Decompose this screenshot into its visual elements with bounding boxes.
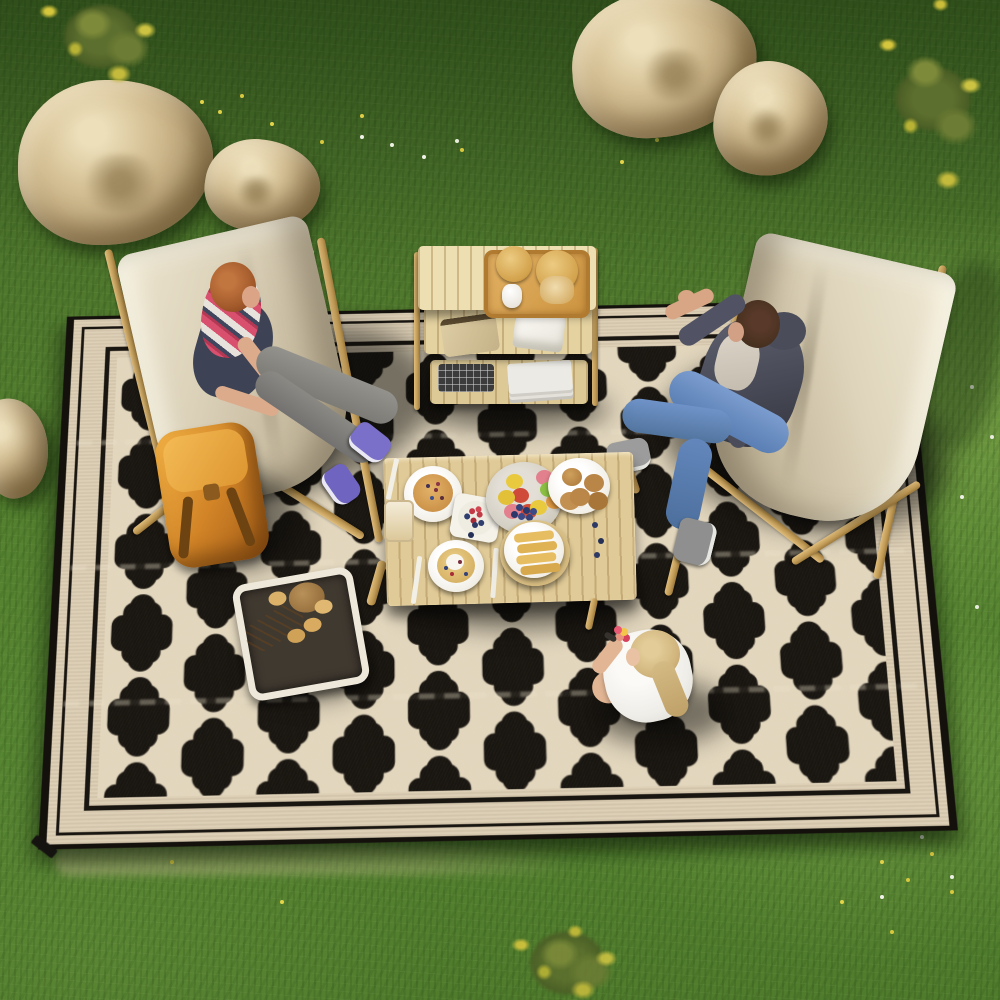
backpack-strap — [225, 486, 257, 547]
berries — [444, 566, 448, 570]
snack-bag — [440, 312, 501, 357]
shrub-bottom-center — [490, 918, 645, 1000]
child-snack — [614, 626, 622, 634]
yellow-flower-dots-bottom-right — [880, 860, 884, 864]
buns — [562, 468, 582, 486]
outdoor-picnic-scene — [0, 0, 1000, 1000]
cream-pancake-plate — [428, 540, 484, 592]
cream-dollop — [446, 554, 464, 570]
rock-mottling — [77, 154, 165, 212]
backpack-buckle — [202, 483, 220, 501]
snack-jar — [496, 246, 532, 282]
woman-face — [242, 286, 260, 308]
blueberry-cluster — [516, 504, 523, 511]
pancakes — [413, 474, 453, 512]
wire-basket — [438, 364, 494, 392]
dry-grass-patch — [55, 845, 575, 875]
child-face — [626, 648, 640, 666]
rock-mottling — [740, 105, 795, 154]
berries-on-pancake — [426, 484, 430, 488]
buns-plate — [548, 458, 610, 514]
mixed-fruit — [506, 474, 523, 489]
rock-mottling — [636, 47, 713, 103]
loose-blueberries — [472, 522, 478, 528]
bread-basket — [231, 565, 372, 702]
white-flower-dots — [360, 135, 364, 139]
toast-plate — [504, 522, 564, 578]
creamer-pitcher — [502, 284, 522, 308]
snack-jar-on-table — [384, 500, 414, 542]
backpack-strap — [178, 496, 193, 559]
man-face — [728, 322, 744, 342]
book-stack — [507, 360, 573, 394]
backpack — [152, 419, 272, 571]
french-toast-sticks — [514, 530, 555, 543]
man-hand — [678, 290, 695, 305]
rock-mottling — [231, 173, 281, 211]
yellow-flower-dots — [200, 100, 204, 104]
jar-snacks — [540, 276, 574, 304]
